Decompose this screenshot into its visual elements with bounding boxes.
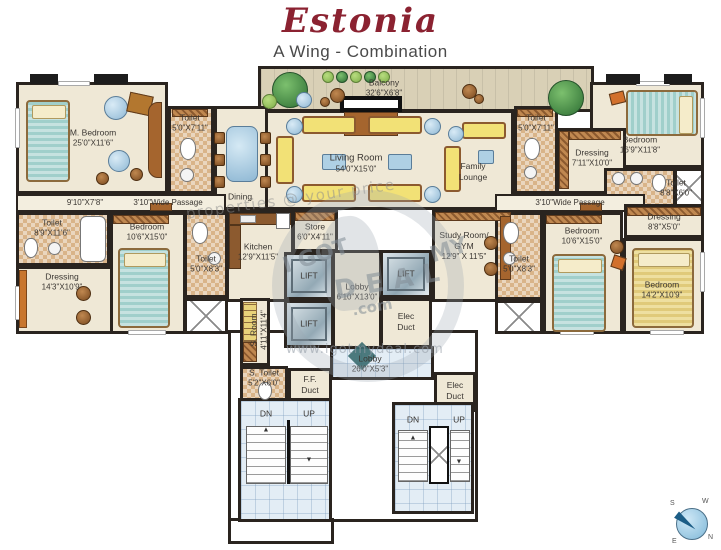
armchair-icon (286, 118, 303, 135)
plant-icon (262, 94, 277, 109)
label-toilet-right-edge: Toilet8'8"X6'0" (660, 177, 692, 198)
dining-chair (214, 176, 225, 188)
armchair-icon (424, 186, 441, 203)
pillow (679, 96, 693, 134)
stair-divider (287, 420, 290, 484)
label-s-room: S. Room4'11"X11'4" (248, 310, 269, 350)
round-table-icon (296, 92, 312, 108)
sofa-icon (368, 116, 422, 134)
armchair-icon (424, 118, 441, 135)
dining-chair (260, 132, 271, 144)
kitchen-sink (240, 215, 256, 223)
sofa-icon (302, 184, 356, 202)
pillow (558, 259, 602, 273)
floor-plan-page: Estonia A Wing - Combination (0, 0, 721, 550)
wardrobe-hatch (559, 131, 569, 189)
bed-icon (118, 248, 170, 328)
compass-west: W (702, 498, 709, 505)
chair-icon (130, 168, 143, 181)
sink-icon (180, 168, 194, 182)
label-toilet-mid-left: Toilet5'0"X8'3" (190, 253, 222, 274)
sink-icon (524, 166, 537, 179)
label-bedroom-left: Bedroom10'6"X15'0" (127, 221, 168, 242)
label-dressing-left: Dressing14'3"X10'9" (42, 271, 83, 292)
label-lift-1: LIFT (300, 270, 317, 281)
window (128, 330, 166, 335)
wc-icon (524, 138, 540, 160)
window (58, 81, 90, 86)
wardrobe-hatch (546, 215, 602, 224)
wc-icon (24, 238, 38, 258)
header: Estonia A Wing - Combination (0, 4, 721, 62)
label-lift-3: LIFT (397, 268, 414, 279)
label-ff-duct: F.F.Duct (301, 374, 318, 396)
pillow (32, 105, 66, 119)
pillow (124, 253, 166, 267)
label-lift-2: LIFT (300, 318, 317, 329)
label-sitting-dims: 9'10"X7'8" (67, 198, 103, 208)
bed-icon (552, 254, 606, 332)
stair-flight-up-right (450, 430, 470, 482)
arrow-down-icon: ▼ (306, 457, 313, 464)
label-toilet-left: Toilet8'9"X11'6" (34, 217, 70, 238)
wc-icon (503, 222, 519, 244)
compass-icon: S W E N (660, 494, 718, 550)
label-dining: Dining (228, 191, 252, 202)
label-bedroom-mid-right: Bedroom10'6"X15'0" (562, 225, 603, 246)
coffee-table-icon (388, 154, 412, 170)
pillow (638, 253, 690, 267)
bathtub-icon (80, 216, 106, 262)
wardrobe-curve (148, 102, 162, 178)
label-passage-left: 3'10"Wide Passage (133, 198, 202, 208)
label-bedroom-bottom-right: Bedroom14'2"X10'9" (642, 279, 683, 300)
chajja-stub (30, 74, 58, 84)
plant-icon (350, 71, 362, 83)
label-lobby-bottom: Lobby26'0"X5'3" (352, 353, 388, 374)
bistro-chair (474, 94, 484, 104)
label-s-toilet: S. Toilet5'2"X6'0" (248, 367, 280, 388)
label-toilet-mid-right: Toilet5'0"X8'3" (503, 253, 535, 274)
arrow-up-icon: ▲ (263, 427, 270, 434)
sofa-icon (276, 136, 294, 184)
page-title: Estonia (0, 4, 721, 40)
stair-flight-dn-left (246, 426, 286, 484)
label-elec-duct-bottom: ElecDuct (446, 380, 463, 402)
label-m-bedroom: M. Bedroom25'0"X11'6" (70, 127, 116, 148)
label-bedroom-top-right: Bedroom16'9"X11'8" (620, 134, 660, 155)
bistro-table (330, 88, 345, 103)
wc-icon (180, 138, 196, 160)
label-store: Store6'0"X4'11" (297, 221, 333, 242)
label-family-lounge: FamilyLounge (459, 161, 487, 183)
round-table-icon (108, 150, 130, 172)
round-table-icon (104, 96, 128, 120)
chajja-stub (606, 74, 640, 84)
wc-icon (192, 222, 208, 244)
label-passage-right: 3'10"Wide Passage (535, 198, 604, 208)
label-kitchen: Kitchen12'9"X11'5" (238, 241, 278, 262)
shaft-right (495, 300, 543, 334)
window (700, 252, 705, 292)
label-stair-dn-left: DN (260, 408, 272, 419)
chair-icon (96, 172, 109, 185)
sofa-icon (302, 116, 356, 134)
plant-icon (548, 80, 584, 116)
stair-flight-up-left (290, 426, 328, 484)
label-lobby-core: Lobby6'10"X13'0" (337, 281, 378, 302)
sofa-icon (462, 122, 506, 139)
label-elec-duct-core: ElecDuct (397, 311, 414, 333)
label-dressing-upper-right: Dressing7'11"X10'0" (572, 147, 612, 168)
bed-icon (26, 100, 70, 182)
compass-east: E (672, 538, 677, 545)
chair-icon (76, 310, 91, 325)
label-stair-up-right: UP (453, 414, 465, 425)
window (650, 330, 684, 335)
arrow-up-icon: ▲ (410, 435, 417, 442)
label-living: Living Room54'0"X15'0" (330, 153, 383, 176)
plant-icon (322, 71, 334, 83)
sofa-icon (368, 184, 422, 202)
wardrobe-hatch (295, 212, 335, 221)
compass-south: S (670, 500, 675, 507)
sink-icon (630, 172, 643, 185)
dining-chair (214, 132, 225, 144)
label-toilet-upper-right: Toilet5'0"X7'11" (518, 112, 554, 133)
chajja-stub (94, 74, 128, 84)
label-toilet-upper-left: Toilet5'0"X7'11" (172, 112, 208, 133)
label-balcony: Balcony32'6"X6'8" (366, 77, 402, 98)
dining-chair (260, 176, 271, 188)
sink-icon (612, 172, 625, 185)
shaft-left (184, 298, 228, 334)
chair-icon (610, 240, 624, 254)
bed-icon (626, 90, 698, 136)
arrow-down-icon: ▼ (456, 459, 463, 466)
compass-north: N (708, 534, 713, 541)
gym-stool (484, 262, 498, 276)
wardrobe-hatch (569, 131, 621, 140)
dining-chair (260, 154, 271, 166)
armchair-icon (286, 186, 303, 203)
label-dressing-right: Dressing8'8"X5'0" (647, 211, 681, 232)
fridge-icon (276, 213, 290, 229)
page-subtitle: A Wing - Combination (0, 42, 721, 62)
bistro-chair (320, 97, 330, 107)
window (700, 98, 705, 138)
dining-table-icon (226, 126, 258, 182)
dining-chair (214, 154, 225, 166)
window (15, 108, 20, 148)
sink-icon (48, 242, 61, 255)
stair-midwell (429, 426, 449, 484)
plant-icon (336, 71, 348, 83)
label-study: Study Room/GYM12'9" X 11'5" (439, 230, 488, 262)
label-stair-dn-right: DN (407, 414, 419, 425)
armchair-icon (448, 126, 464, 142)
label-stair-up-left: UP (303, 408, 315, 419)
chajja-stub (664, 74, 692, 84)
wardrobe (19, 270, 27, 328)
